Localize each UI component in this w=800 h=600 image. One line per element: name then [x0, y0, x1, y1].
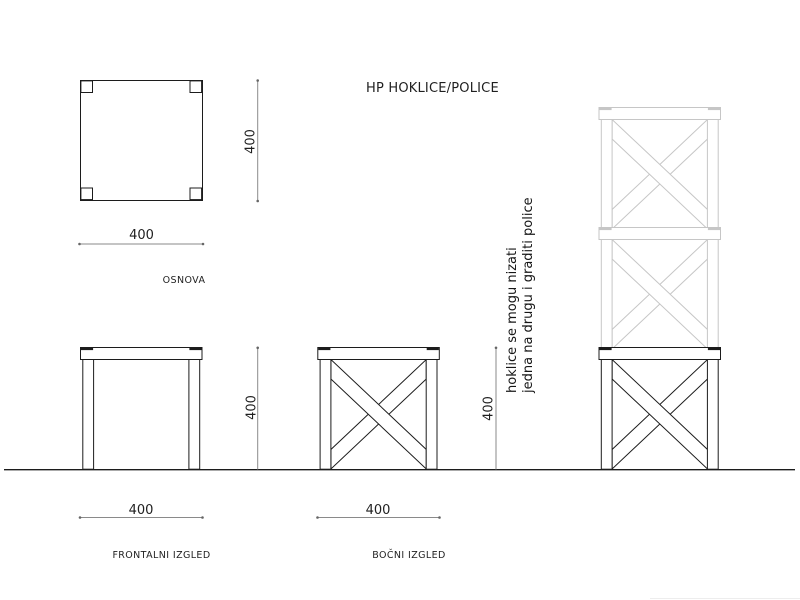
plan-view	[81, 81, 203, 201]
plan-height-dimension: 400	[244, 111, 257, 171]
side-height-dimension: 400	[483, 378, 496, 438]
stacking-note: hoklice se mogu nizati jedna na drugu i …	[505, 197, 537, 393]
plan-width-dimension: 400	[112, 229, 172, 242]
stacked-stools	[599, 108, 721, 470]
drawing-title: HP HOKLICE/POLICE	[366, 81, 499, 96]
front-width-dimension: 400	[111, 504, 171, 517]
side-view	[318, 348, 440, 470]
plan-view-label: OSNOVA	[114, 276, 254, 286]
front-view-label: FRONTALNI IZGLED	[92, 551, 232, 561]
front-height-dimension: 400	[245, 378, 258, 438]
solid-stool-bottom	[599, 348, 721, 470]
ghost-stool-top	[599, 108, 721, 230]
side-width-dimension: 400	[348, 504, 408, 517]
stacking-note-line2: jedna na drugu i graditi police	[521, 197, 537, 393]
technical-drawing-page: HP HOKLICE/POLICE 400 400 OSNOVA 400 400…	[0, 0, 800, 600]
side-view-label: BOČNI IZGLED	[339, 551, 479, 561]
stacking-note-line1: hoklice se mogu nizati	[505, 197, 521, 393]
front-view	[81, 348, 203, 470]
ghost-stool-middle	[599, 228, 721, 350]
